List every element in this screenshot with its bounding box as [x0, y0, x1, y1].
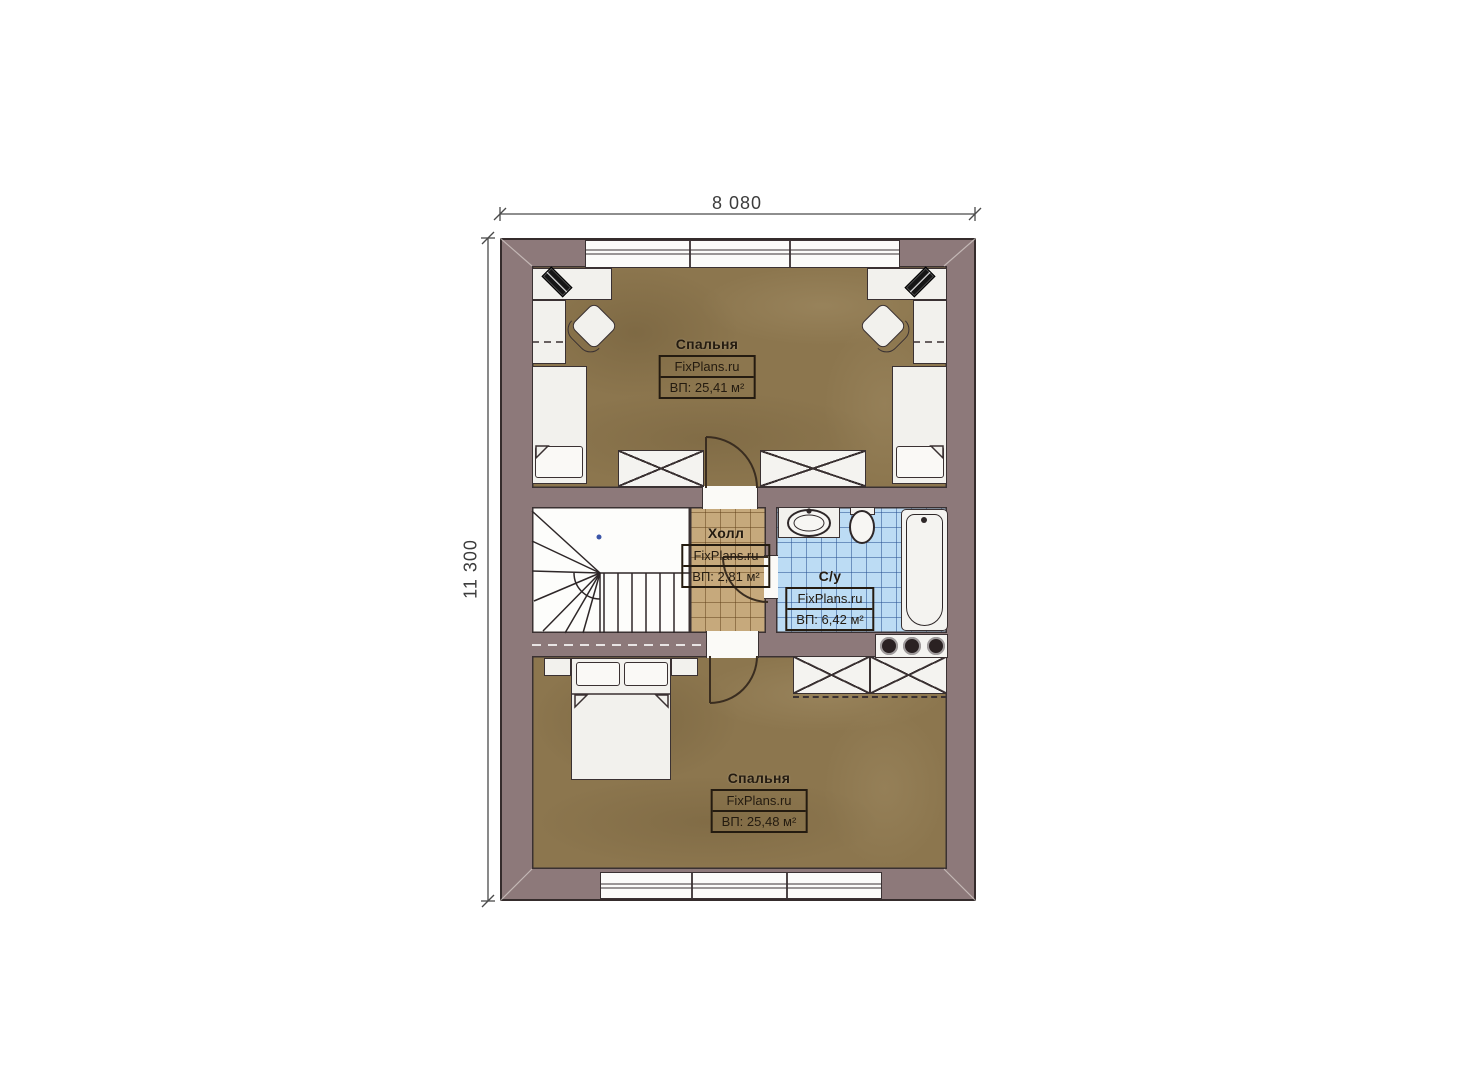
room-info-box: FixPlans.ru ВП: 25,48 м² — [711, 789, 808, 833]
room-name: Спальня — [728, 770, 791, 786]
room-info-box: FixPlans.ru ВП: 6,42 м² — [785, 587, 874, 631]
boiler-dial-icon — [927, 637, 945, 655]
room-name: Спальня — [676, 336, 739, 352]
desk-side-right — [913, 300, 947, 364]
bathtub — [901, 509, 948, 631]
room-area: ВП: 6,42 м² — [787, 608, 872, 629]
dimension-height-label: 11 300 — [461, 539, 482, 599]
wardrobe-front-dashed-line — [793, 694, 947, 698]
stairwell — [532, 507, 690, 633]
room-label-bedroom-bottom: Спальня FixPlans.ru ВП: 25,48 м² — [711, 770, 808, 833]
wardrobe-top-left — [618, 450, 704, 487]
desk-side-left — [532, 300, 566, 364]
room-name: С/у — [819, 568, 842, 584]
nightstand-left — [544, 658, 571, 676]
sink-counter — [778, 507, 840, 538]
pillow-right — [896, 446, 944, 478]
room-label-hall: Холл FixPlans.ru ВП: 2,81 м² — [681, 525, 770, 588]
room-label-bathroom: С/у FixPlans.ru ВП: 6,42 м² — [785, 568, 874, 631]
boiler-unit — [875, 634, 948, 658]
pillow-double-right — [624, 662, 668, 686]
room-info-box: FixPlans.ru ВП: 2,81 м² — [681, 544, 770, 588]
dimension-width-label: 8 080 — [712, 193, 762, 214]
nightstand-right — [671, 658, 698, 676]
room-area: ВП: 2,81 м² — [683, 565, 768, 586]
bathtub-basin — [906, 514, 943, 626]
toilet-tank — [850, 507, 875, 515]
brand-watermark: FixPlans.ru — [683, 546, 768, 565]
brand-watermark: FixPlans.ru — [661, 357, 754, 376]
wardrobe-top-right — [760, 450, 866, 487]
pillow-left — [535, 446, 583, 478]
floor-plan-page: Спальня FixPlans.ru ВП: 25,41 м² Холл Fi… — [0, 0, 1473, 1080]
room-name: Холл — [708, 525, 744, 541]
room-area: ВП: 25,41 м² — [661, 376, 754, 397]
window-top — [585, 240, 900, 268]
wardrobe-bottom-right — [870, 656, 947, 694]
door-opening-bottom-bedroom — [706, 631, 759, 658]
room-label-bedroom-top: Спальня FixPlans.ru ВП: 25,41 м² — [659, 336, 756, 399]
window-bottom — [600, 872, 882, 899]
room-info-box: FixPlans.ru ВП: 25,41 м² — [659, 355, 756, 399]
room-area: ВП: 25,48 м² — [713, 810, 806, 831]
boiler-dial-icon — [903, 637, 921, 655]
brand-watermark: FixPlans.ru — [787, 589, 872, 608]
boiler-dial-icon — [880, 637, 898, 655]
pillow-double-left — [576, 662, 620, 686]
brand-watermark: FixPlans.ru — [713, 791, 806, 810]
wardrobe-bottom-left — [793, 656, 870, 694]
door-opening-top-bedroom — [702, 486, 758, 509]
